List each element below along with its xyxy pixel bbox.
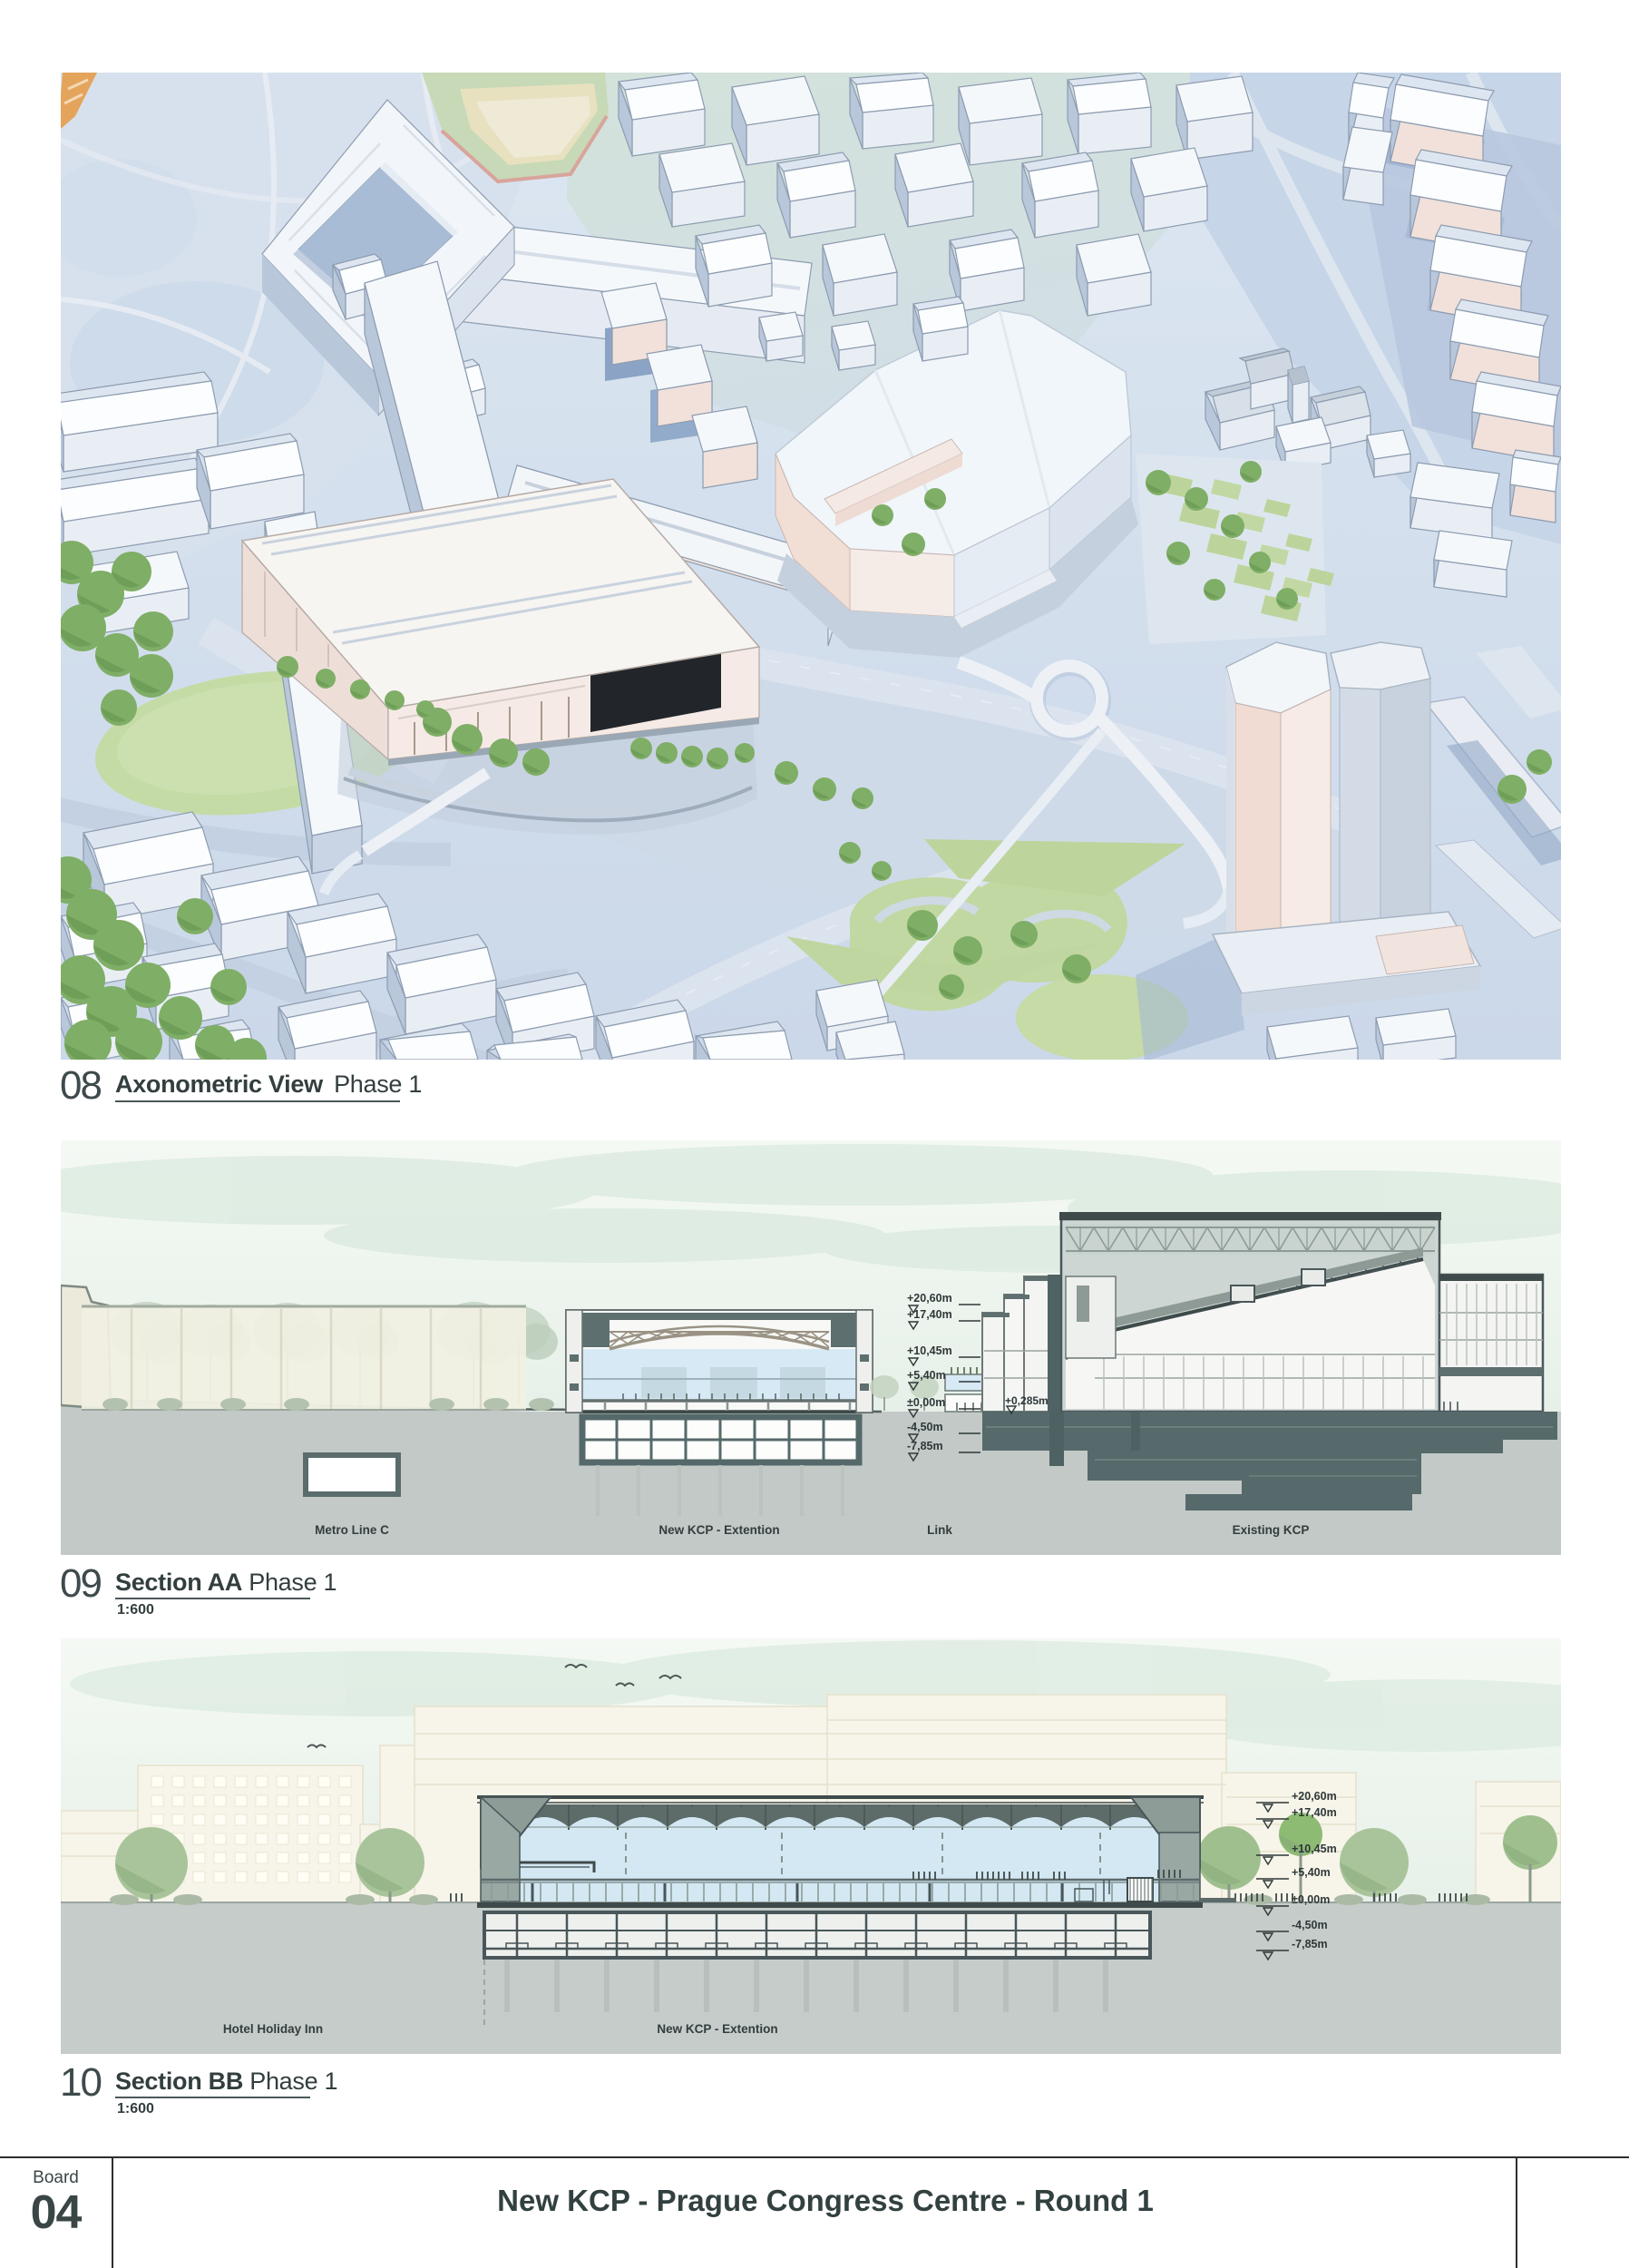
svg-text:-4,50m: -4,50m [1292,1919,1328,1931]
svg-text:Metro Line C: Metro Line C [315,1523,389,1537]
svg-text:+20,60m: +20,60m [907,1292,952,1305]
svg-text:±0,00m: ±0,00m [907,1396,945,1409]
svg-text:+5,40m: +5,40m [907,1369,946,1382]
svg-text:-7,85m: -7,85m [907,1440,943,1452]
svg-text:+10,45m: +10,45m [907,1344,952,1357]
svg-text:-7,85m: -7,85m [1292,1938,1328,1950]
svg-text:-4,50m: -4,50m [907,1421,943,1433]
svg-text:+5,40m: +5,40m [1292,1866,1331,1879]
svg-text:±0,00m: ±0,00m [1292,1893,1330,1906]
svg-text:+17,40m: +17,40m [1292,1806,1337,1819]
svg-text:+20,60m: +20,60m [1292,1790,1337,1803]
svg-text:Link: Link [927,1523,952,1537]
svg-text:New KCP - Extention: New KCP - Extention [657,2022,777,2036]
svg-text:New KCP - Extention: New KCP - Extention [658,1523,779,1537]
svg-text:Hotel Holiday Inn: Hotel Holiday Inn [223,2022,323,2036]
svg-text:+10,45m: +10,45m [1292,1843,1337,1855]
svg-text:+17,40m: +17,40m [907,1308,952,1321]
svg-text:+0,285m: +0,285m [1005,1394,1049,1407]
svg-text:Existing KCP: Existing KCP [1233,1523,1310,1537]
